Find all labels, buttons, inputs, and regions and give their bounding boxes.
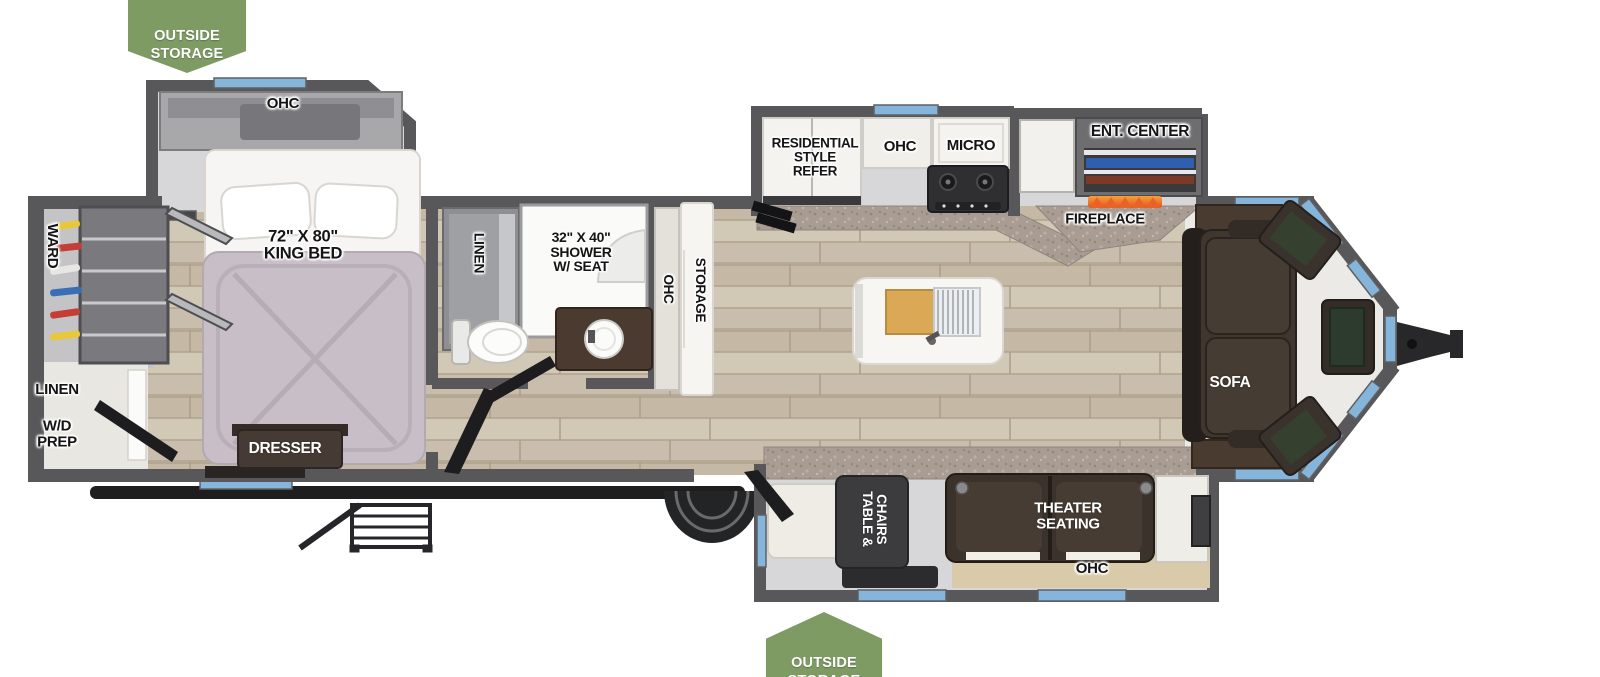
living-ohc-label: OHC: [1076, 561, 1108, 577]
rear-bumper: [90, 486, 745, 499]
dinette-bench: [768, 484, 842, 558]
fireplace: [1088, 196, 1162, 208]
micro-label: MICRO: [947, 138, 996, 154]
ward-label: WARD: [44, 224, 60, 269]
floorplan-page: OUTSIDE STORAGE OUTSIDE STORAGE OHC 72" …: [0, 0, 1600, 677]
outside-storage-callout-top-label: OUTSIDE STORAGE: [151, 28, 224, 62]
fireplace-label: FIREPLACE: [1065, 212, 1144, 227]
kitchen-ohc-label: OHC: [884, 139, 916, 155]
hitch: [1397, 322, 1463, 366]
bath-vanity-sink: [556, 308, 652, 370]
theater-seating-label: THEATER SEATING: [1034, 500, 1102, 532]
ent-center-label: ENT. CENTER: [1091, 124, 1189, 140]
kitchen-island: [853, 278, 1003, 364]
bath-linen-label: LINEN: [472, 233, 487, 274]
shower-label: 32" X 40" SHOWER W/ SEAT: [550, 230, 611, 274]
outside-storage-callout-bottom-label: OUTSIDE STORAGE: [788, 655, 861, 677]
sofa-label: SOFA: [1209, 375, 1250, 391]
hall-storage-label: STORAGE: [693, 258, 707, 322]
bedroom-entry-steps: [300, 505, 432, 552]
hall-ohc-label: OHC: [661, 274, 675, 303]
main-entry-steps: [664, 491, 760, 543]
toilet: [452, 320, 528, 364]
bottom-slide-end-cabinet: [1156, 476, 1210, 562]
wd-prep-label: W/D PREP: [37, 418, 77, 450]
floorplan-canvas: [0, 0, 1600, 677]
front-center-tv: [1322, 300, 1374, 374]
slide-step-mat: [200, 481, 292, 489]
dresser-label: DRESSER: [249, 441, 322, 457]
king-bed-label: 72" X 80" KING BED: [264, 229, 342, 264]
table-chairs-label: TABLE & CHAIRS: [860, 491, 888, 546]
refrigerator-label: RESIDENTIAL STYLE REFER: [772, 137, 859, 180]
stove-cooktop: [928, 166, 1008, 212]
king-bed: [203, 150, 425, 464]
rear-linen-label: LINEN: [35, 382, 79, 398]
bedroom-ohc-label: OHC: [267, 96, 299, 112]
